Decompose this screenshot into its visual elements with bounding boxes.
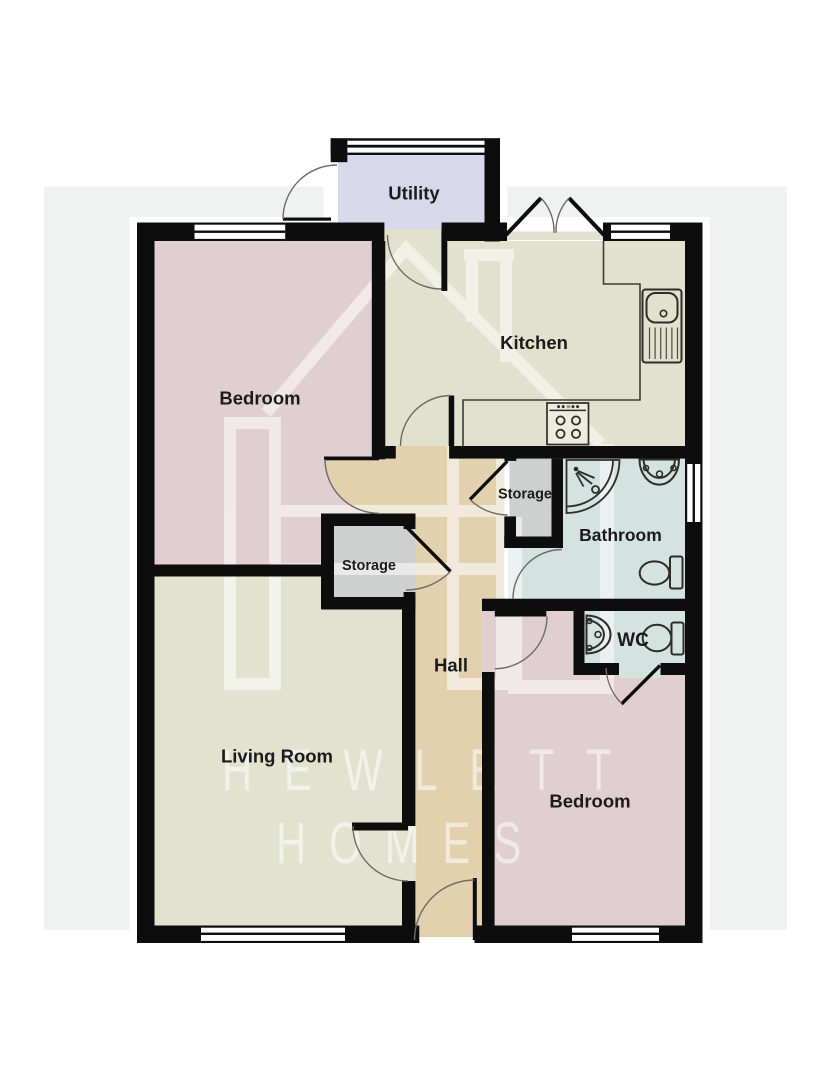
svg-text:Bathroom: Bathroom — [579, 525, 662, 545]
svg-text:Storage: Storage — [498, 487, 552, 503]
svg-text:Living Room: Living Room — [221, 746, 333, 767]
svg-text:Storage: Storage — [342, 558, 396, 574]
svg-text:Utility: Utility — [388, 183, 440, 204]
svg-text:Bedroom: Bedroom — [549, 791, 630, 812]
svg-text:WC: WC — [617, 630, 649, 651]
svg-text:Kitchen: Kitchen — [500, 332, 568, 353]
svg-text:Bedroom: Bedroom — [219, 388, 300, 409]
svg-text:Hall: Hall — [434, 655, 468, 676]
